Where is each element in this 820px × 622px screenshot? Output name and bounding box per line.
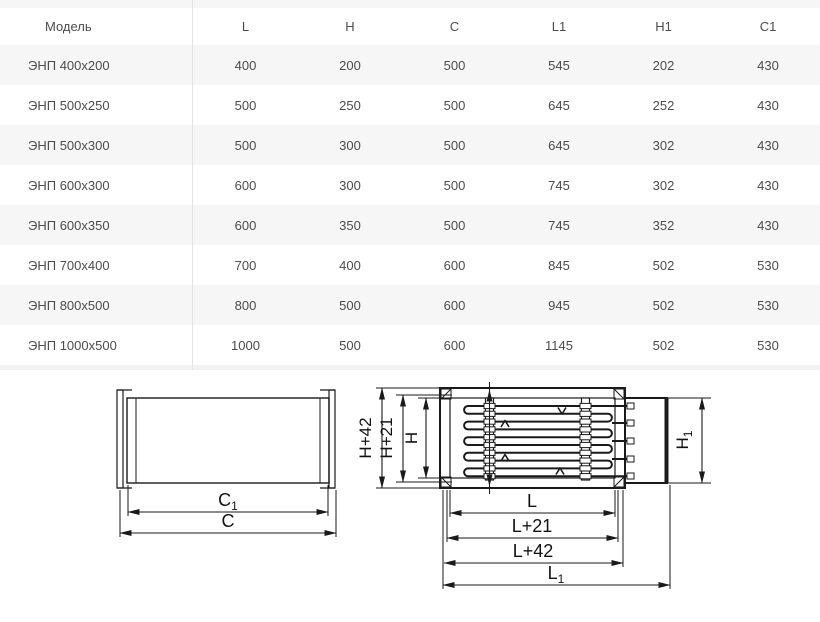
value-cell: 500 (402, 85, 507, 125)
label-h1: H1 (673, 430, 695, 449)
label-l1: L1 (548, 563, 565, 586)
value-cell: 502 (611, 245, 716, 285)
label-l42: L+42 (513, 541, 554, 561)
value-cell: 252 (611, 85, 716, 125)
duct-flange-right (329, 390, 335, 488)
label-h: H (402, 432, 421, 444)
table-row: ЭНП 600x350600350500745352430 (0, 205, 820, 245)
column-header-c: C (402, 8, 507, 45)
dimension-h: H (402, 398, 450, 478)
technical-drawing: C1 C (0, 370, 820, 622)
value-cell: 1145 (507, 325, 611, 365)
column-header-l1: L1 (507, 8, 611, 45)
table-row: ЭНП 1000x50010005006001145502530 (0, 325, 820, 365)
value-cell: 600 (402, 285, 507, 325)
value-cell: 500 (402, 125, 507, 165)
value-cell: 945 (507, 285, 611, 325)
value-cell: 300 (298, 125, 402, 165)
value-cell: 745 (507, 165, 611, 205)
value-cell: 500 (193, 125, 298, 165)
value-cell: 800 (193, 285, 298, 325)
flange-cap-ticks (117, 390, 335, 488)
dimension-l1: L1 (443, 563, 670, 586)
model-cell: ЭНП 400x200 (0, 45, 193, 85)
value-cell: 530 (716, 285, 820, 325)
spec-table-body: ЭНП 400x200400200500545202430ЭНП 500x250… (0, 45, 820, 365)
model-cell: ЭНП 700x400 (0, 245, 193, 285)
model-cell: ЭНП 500x250 (0, 85, 193, 125)
flow-chevrons (501, 408, 566, 475)
value-cell: 500 (402, 165, 507, 205)
duct-body-inner-lines (136, 398, 320, 483)
value-cell: 430 (716, 85, 820, 125)
value-cell: 845 (507, 245, 611, 285)
model-cell: ЭНП 600x300 (0, 165, 193, 205)
value-cell: 430 (716, 205, 820, 245)
label-l21: L+21 (512, 516, 553, 536)
table-column-divider (192, 0, 193, 370)
dimension-h1: H1 (673, 398, 702, 483)
value-cell: 302 (611, 125, 716, 165)
table-row: ЭНП 800x500800500600945502530 (0, 285, 820, 325)
table-row: ЭНП 700x400700400600845502530 (0, 245, 820, 285)
value-cell: 600 (402, 325, 507, 365)
model-cell: ЭНП 800x500 (0, 285, 193, 325)
column-header-h: H (298, 8, 402, 45)
value-cell: 500 (298, 285, 402, 325)
spec-table: Модель L H C L1 H1 C1 ЭНП 400x2004002005… (0, 8, 820, 365)
label-h42: H+42 (356, 417, 375, 458)
table-header-row: Модель L H C L1 H1 C1 (0, 8, 820, 45)
model-cell: ЭНП 1000x500 (0, 325, 193, 365)
value-cell: 302 (611, 165, 716, 205)
value-cell: 600 (402, 245, 507, 285)
value-cell: 1000 (193, 325, 298, 365)
value-cell: 500 (298, 325, 402, 365)
duct-flange-left (117, 390, 123, 488)
value-cell: 200 (298, 45, 402, 85)
value-cell: 250 (298, 85, 402, 125)
value-cell: 530 (716, 325, 820, 365)
column-header-c1: C1 (716, 8, 820, 45)
column-header-model: Модель (0, 8, 193, 45)
model-cell: ЭНП 600x350 (0, 205, 193, 245)
value-cell: 545 (507, 45, 611, 85)
value-cell: 500 (402, 205, 507, 245)
value-cell: 600 (193, 205, 298, 245)
value-cell: 500 (193, 85, 298, 125)
value-cell: 745 (507, 205, 611, 245)
dimension-h42: H+42 (356, 388, 440, 488)
value-cell: 645 (507, 85, 611, 125)
table-row: ЭНП 500x300500300500645302430 (0, 125, 820, 165)
value-cell: 502 (611, 325, 716, 365)
value-cell: 500 (402, 45, 507, 85)
value-cell: 430 (716, 45, 820, 85)
table-row: ЭНП 500x250500250500645252430 (0, 85, 820, 125)
value-cell: 530 (716, 245, 820, 285)
label-h21: H+21 (377, 417, 396, 458)
value-cell: 700 (193, 245, 298, 285)
label-l: L (527, 491, 537, 511)
dimension-l21: L+21 (447, 516, 618, 538)
value-cell: 400 (193, 45, 298, 85)
table-row: ЭНП 600x300600300500745302430 (0, 165, 820, 205)
value-cell: 502 (611, 285, 716, 325)
table-top-strip (0, 0, 820, 8)
value-cell: 300 (298, 165, 402, 205)
duct-side-view: C1 C (117, 390, 336, 537)
dimension-l42: L+42 (444, 541, 623, 563)
duct-extension (625, 398, 711, 483)
value-cell: 400 (298, 245, 402, 285)
value-cell: 350 (298, 205, 402, 245)
value-cell: 430 (716, 165, 820, 205)
value-cell: 352 (611, 205, 716, 245)
heater-top-view: H+42 H+21 H H1 L (356, 382, 711, 589)
value-cell: 645 (507, 125, 611, 165)
label-c1: C1 (218, 490, 238, 513)
dimension-l: L (450, 491, 615, 513)
table-row: ЭНП 400x200400200500545202430 (0, 45, 820, 85)
column-header-l: L (193, 8, 298, 45)
page: Модель L H C L1 H1 C1 ЭНП 400x2004002005… (0, 0, 820, 622)
value-cell: 202 (611, 45, 716, 85)
model-cell: ЭНП 500x300 (0, 125, 193, 165)
duct-body (127, 398, 329, 483)
label-c: C (222, 511, 235, 531)
column-header-h1: H1 (611, 8, 716, 45)
support-bracket-right (580, 398, 591, 480)
value-cell: 430 (716, 125, 820, 165)
value-cell: 600 (193, 165, 298, 205)
